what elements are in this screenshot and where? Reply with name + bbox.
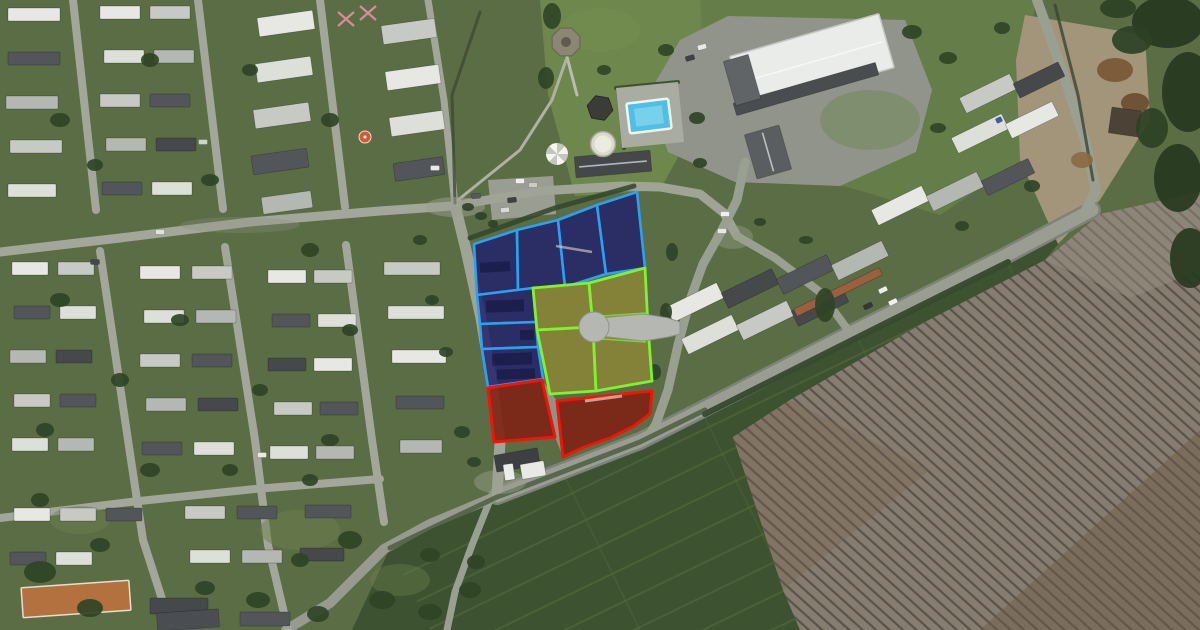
parked-car bbox=[258, 453, 267, 458]
caravan-home bbox=[192, 266, 232, 279]
caravan-home bbox=[388, 306, 444, 319]
tree bbox=[467, 457, 481, 467]
caravan-home bbox=[12, 438, 48, 451]
tree bbox=[369, 591, 395, 609]
caravan-home bbox=[104, 50, 144, 63]
tree bbox=[171, 314, 189, 326]
caravan-home bbox=[392, 350, 446, 363]
caravan-home bbox=[14, 394, 50, 407]
caravan-home bbox=[14, 306, 50, 319]
tree bbox=[955, 221, 969, 231]
tree bbox=[799, 236, 813, 244]
caravan-home bbox=[198, 398, 238, 411]
tree bbox=[994, 22, 1010, 34]
caravan-home bbox=[274, 402, 312, 415]
tree bbox=[31, 493, 49, 507]
caravan-home bbox=[140, 354, 180, 367]
parked-car bbox=[721, 212, 730, 217]
tree bbox=[815, 288, 835, 322]
tree bbox=[939, 52, 957, 64]
tree bbox=[140, 463, 160, 477]
caravan-home bbox=[8, 184, 56, 197]
tree bbox=[201, 174, 219, 186]
tree bbox=[321, 113, 339, 127]
tree bbox=[413, 235, 427, 245]
tree bbox=[538, 67, 554, 89]
tree bbox=[90, 538, 110, 552]
tree bbox=[454, 426, 470, 438]
caravan-home bbox=[60, 306, 96, 319]
swimming-pool bbox=[626, 99, 671, 134]
tree bbox=[1024, 180, 1040, 192]
caravan-home bbox=[12, 262, 48, 275]
tree bbox=[658, 44, 674, 56]
caravan-home bbox=[106, 508, 142, 521]
tree bbox=[36, 423, 54, 437]
caravan-home bbox=[60, 394, 96, 407]
parked-car bbox=[199, 140, 208, 145]
caravan-home bbox=[154, 50, 194, 63]
caravan-home bbox=[56, 350, 92, 363]
tree bbox=[50, 293, 70, 307]
tree bbox=[321, 434, 339, 446]
caravan-home bbox=[58, 438, 94, 451]
tree bbox=[459, 582, 481, 598]
caravan-home bbox=[237, 506, 277, 519]
caravan-home bbox=[102, 182, 142, 195]
satellite-map-image bbox=[0, 0, 1200, 630]
caravan-home bbox=[190, 550, 230, 563]
tree bbox=[418, 604, 442, 620]
caravan-home bbox=[150, 94, 190, 107]
tree bbox=[543, 3, 561, 29]
caravan-home bbox=[8, 8, 60, 21]
caravan-home bbox=[150, 6, 190, 19]
parked-car bbox=[507, 197, 516, 203]
tree bbox=[1112, 26, 1152, 54]
caravan-home bbox=[316, 446, 354, 459]
tree bbox=[597, 65, 611, 75]
caravan-home bbox=[384, 262, 440, 275]
tree bbox=[754, 218, 766, 226]
tree bbox=[252, 384, 268, 396]
caravan-home bbox=[242, 550, 282, 563]
caravan-home bbox=[320, 402, 358, 415]
caravan-home bbox=[272, 314, 310, 327]
culdesac-stub-road bbox=[600, 314, 680, 341]
caravan-home bbox=[314, 358, 352, 371]
tree bbox=[307, 606, 329, 622]
caravan-home bbox=[305, 505, 351, 518]
red-plot-1 bbox=[488, 380, 555, 442]
tree bbox=[246, 592, 270, 608]
tree bbox=[87, 159, 103, 171]
tree bbox=[488, 220, 498, 228]
blue-plot-4 bbox=[597, 192, 645, 274]
tree bbox=[24, 561, 56, 583]
caravan-home bbox=[6, 96, 58, 109]
caravan-home bbox=[146, 398, 186, 411]
caravan-home bbox=[100, 6, 140, 19]
parked-car bbox=[431, 166, 440, 171]
caravan-home bbox=[268, 358, 306, 371]
caravan-home bbox=[140, 266, 180, 279]
tree bbox=[689, 112, 705, 124]
tree bbox=[141, 53, 159, 67]
tree bbox=[693, 158, 707, 168]
caravan-home bbox=[240, 612, 290, 626]
striped-parasol bbox=[546, 143, 568, 165]
tree bbox=[467, 555, 485, 569]
tree bbox=[462, 203, 474, 211]
tree bbox=[301, 243, 319, 257]
tree bbox=[902, 25, 922, 39]
caravan-home bbox=[152, 182, 192, 195]
caravan-home bbox=[268, 270, 306, 283]
tree bbox=[50, 113, 70, 127]
caravan-home bbox=[60, 508, 96, 521]
tree bbox=[439, 347, 453, 357]
caravan-home bbox=[185, 506, 225, 519]
tree bbox=[1136, 108, 1168, 148]
parked-car bbox=[500, 207, 509, 213]
tree bbox=[475, 212, 487, 220]
tree bbox=[302, 474, 318, 486]
tree bbox=[666, 243, 678, 261]
caravan-home bbox=[100, 94, 140, 107]
caravan-home bbox=[10, 140, 62, 153]
caravan-home bbox=[14, 508, 50, 521]
caravan-home bbox=[58, 262, 94, 275]
tree bbox=[338, 531, 362, 549]
tree bbox=[222, 464, 238, 476]
tree bbox=[420, 548, 440, 562]
caravan-home bbox=[142, 442, 182, 455]
caravan-home bbox=[192, 354, 232, 367]
caravan-home bbox=[56, 552, 92, 565]
parked-car bbox=[471, 193, 480, 199]
parked-car bbox=[529, 183, 538, 188]
caravan-home bbox=[8, 52, 60, 65]
caravan-home bbox=[106, 138, 146, 151]
satellite-map bbox=[0, 0, 1200, 630]
tree bbox=[111, 373, 129, 387]
tree bbox=[1154, 144, 1200, 212]
caravan-home bbox=[10, 350, 46, 363]
tree bbox=[77, 599, 103, 617]
parked-car bbox=[718, 229, 727, 234]
caravan-home bbox=[396, 396, 444, 409]
tree bbox=[425, 295, 439, 305]
parked-car bbox=[91, 260, 100, 265]
caravan-home bbox=[156, 138, 196, 151]
tree bbox=[291, 553, 309, 567]
tree bbox=[195, 581, 215, 595]
tree bbox=[930, 123, 946, 133]
caravan-home bbox=[270, 446, 308, 459]
parked-car bbox=[516, 179, 525, 184]
caravan-home bbox=[196, 310, 236, 323]
caravan-home bbox=[314, 270, 352, 283]
tree bbox=[342, 324, 358, 336]
parked-car bbox=[503, 463, 515, 480]
parked-car bbox=[156, 230, 165, 235]
tree bbox=[242, 64, 258, 76]
caravan-home bbox=[194, 442, 234, 455]
caravan-home bbox=[400, 440, 442, 453]
